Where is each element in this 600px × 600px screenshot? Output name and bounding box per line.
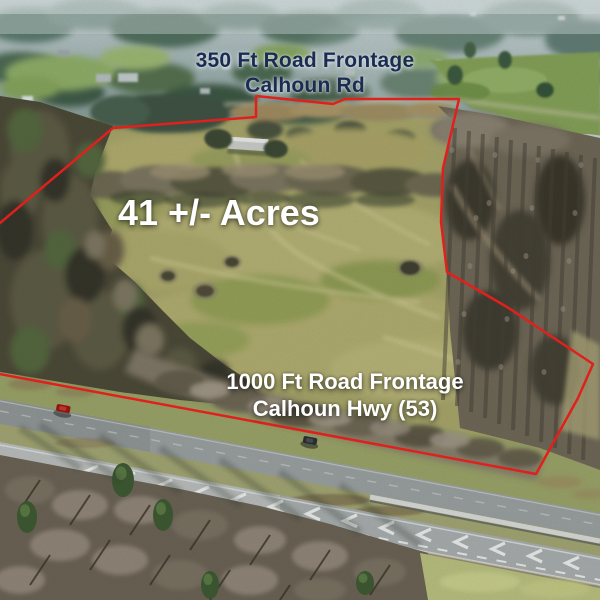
photo-grain xyxy=(0,0,600,600)
aerial-listing-photo: 350 Ft Road Frontage Calhoun Rd 41 +/- A… xyxy=(0,0,600,600)
aerial-photo-canvas xyxy=(0,0,600,600)
